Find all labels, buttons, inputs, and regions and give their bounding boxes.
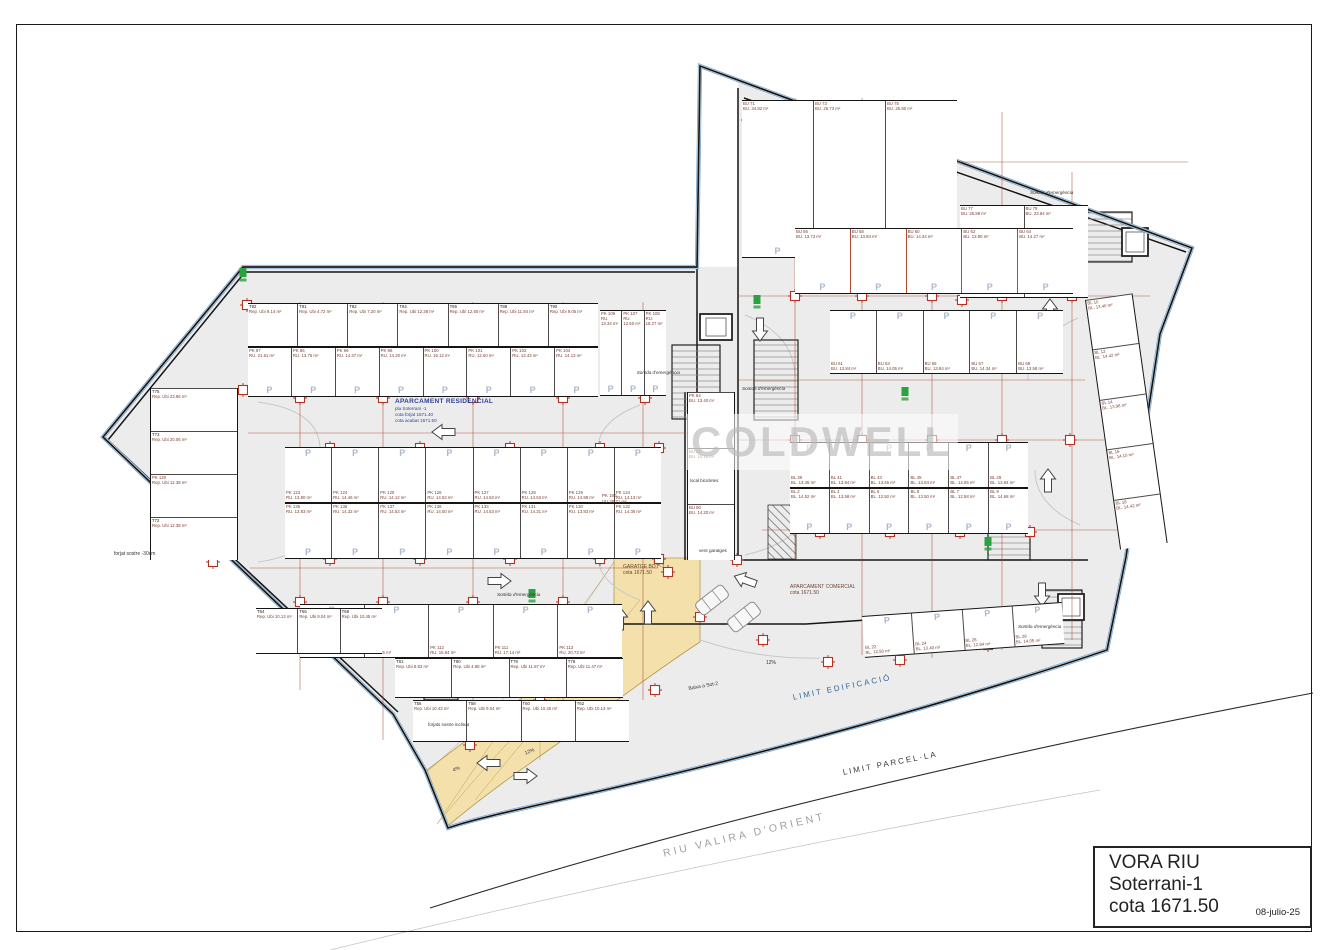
title-project: VORA RIU: [1109, 852, 1310, 874]
title-date: 08-julio-25: [1256, 907, 1300, 918]
title-level: Soterrani-1: [1109, 874, 1310, 896]
drawing-sheet: { "title_block": { "project": "VORA RIU"…: [0, 0, 1330, 950]
title-block: VORA RIU Soterrani-1 cota 1671.50 08-jul…: [1093, 846, 1312, 928]
sheet-frame: [16, 24, 1312, 932]
